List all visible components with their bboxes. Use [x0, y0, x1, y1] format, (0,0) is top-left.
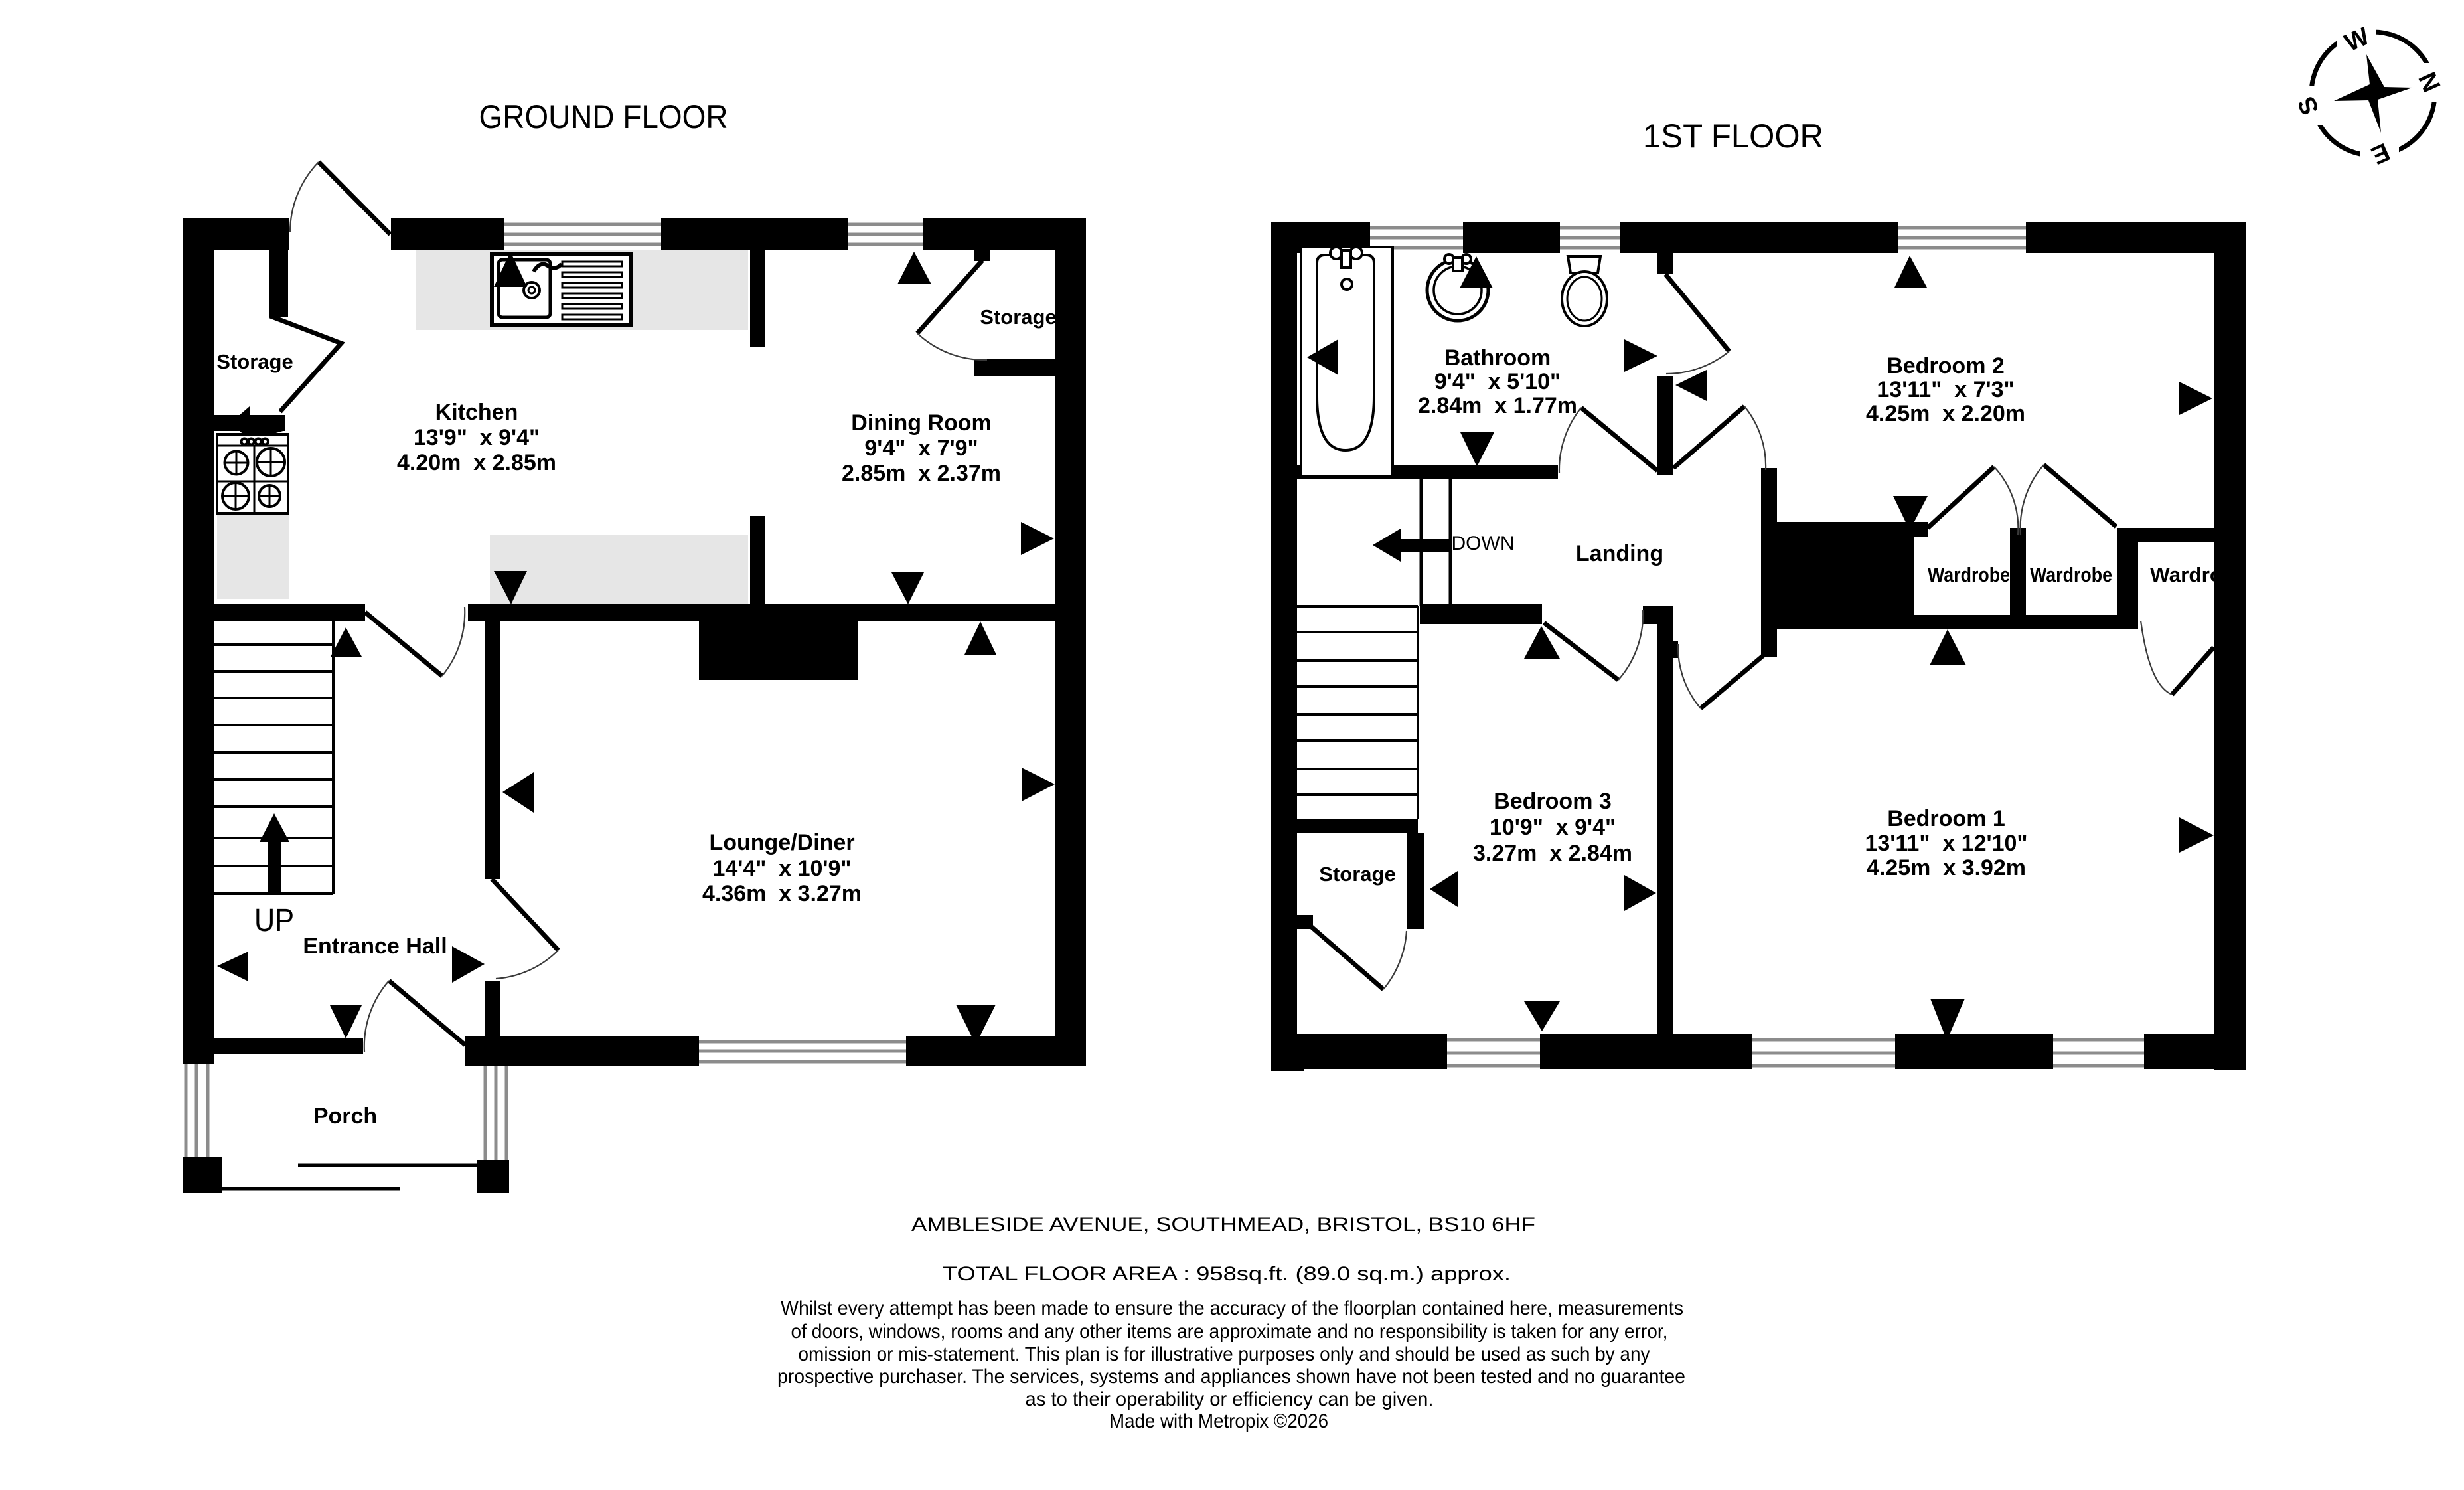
svg-text:of doors, windows, rooms and a: of doors, windows, rooms and any other i… — [791, 1321, 1668, 1343]
svg-text:14'4" x 10'9": 14'4" x 10'9" — [712, 856, 851, 881]
svg-text:13'11" x 12'10": 13'11" x 12'10" — [1865, 831, 2027, 856]
svg-text:Wardrobe: Wardrobe — [2150, 563, 2247, 586]
svg-text:4.25m x 2.20m: 4.25m x 2.20m — [1866, 401, 2025, 426]
svg-text:4.36m x 3.27m: 4.36m x 3.27m — [702, 881, 862, 906]
svg-text:Dining Room: Dining Room — [851, 410, 992, 436]
svg-text:Kitchen: Kitchen — [435, 400, 518, 425]
svg-text:GROUND FLOOR: GROUND FLOOR — [479, 98, 728, 135]
svg-text:Entrance Hall: Entrance Hall — [303, 934, 447, 959]
svg-text:Storage: Storage — [216, 350, 293, 373]
svg-text:Wardrobe: Wardrobe — [1928, 563, 2010, 586]
svg-text:Storage: Storage — [980, 305, 1056, 329]
svg-text:Whilst every attempt has been: Whilst every attempt has been made to en… — [781, 1297, 1683, 1319]
svg-text:Lounge/Diner: Lounge/Diner — [709, 830, 854, 855]
svg-text:Wardrobe: Wardrobe — [2030, 563, 2112, 586]
svg-text:13'11" x 7'3": 13'11" x 7'3" — [1877, 377, 2014, 402]
svg-text:UP: UP — [254, 903, 294, 938]
svg-text:as to their operability or eff: as to their operability or efficiency ca… — [1026, 1388, 1434, 1410]
svg-text:omission or mis-statement. Thi: omission or mis-statement. This plan is … — [799, 1343, 1650, 1365]
svg-text:4.25m x 3.92m: 4.25m x 3.92m — [1867, 855, 2026, 880]
svg-text:prospective purchaser. The ser: prospective purchaser. The services, sys… — [777, 1366, 1685, 1388]
svg-text:Bedroom 3: Bedroom 3 — [1494, 789, 1612, 814]
svg-text:Made with Metropix ©2026: Made with Metropix ©2026 — [1109, 1410, 1328, 1432]
svg-text:2.84m x 1.77m: 2.84m x 1.77m — [1418, 393, 1577, 418]
svg-text:Storage: Storage — [1319, 863, 1395, 886]
svg-text:9'4" x 5'10": 9'4" x 5'10" — [1434, 369, 1561, 394]
svg-text:Bedroom 1: Bedroom 1 — [1887, 806, 2005, 831]
svg-text:AMBLESIDE AVENUE, SOUTHMEAD, B: AMBLESIDE AVENUE, SOUTHMEAD, BRISTOL, BS… — [911, 1214, 1535, 1236]
svg-text:Bathroom: Bathroom — [1444, 345, 1551, 371]
svg-text:TOTAL FLOOR AREA : 958sq.ft. (: TOTAL FLOOR AREA : 958sq.ft. (89.0 sq.m.… — [943, 1263, 1511, 1285]
svg-text:13'9" x 9'4": 13'9" x 9'4" — [414, 425, 540, 450]
svg-text:Bedroom 2: Bedroom 2 — [1887, 353, 2005, 378]
svg-text:4.20m x 2.85m: 4.20m x 2.85m — [397, 450, 556, 475]
svg-text:9'4" x 7'9": 9'4" x 7'9" — [864, 436, 978, 461]
svg-text:Landing: Landing — [1576, 541, 1663, 566]
svg-text:2.85m x 2.37m: 2.85m x 2.37m — [842, 461, 1001, 486]
svg-text:Porch: Porch — [313, 1104, 377, 1129]
svg-text:10'9" x 9'4": 10'9" x 9'4" — [1490, 815, 1616, 840]
svg-text:1ST FLOOR: 1ST FLOOR — [1643, 118, 1823, 155]
svg-text:3.27m x 2.84m: 3.27m x 2.84m — [1473, 841, 1632, 866]
svg-text:DOWN: DOWN — [1452, 533, 1515, 554]
